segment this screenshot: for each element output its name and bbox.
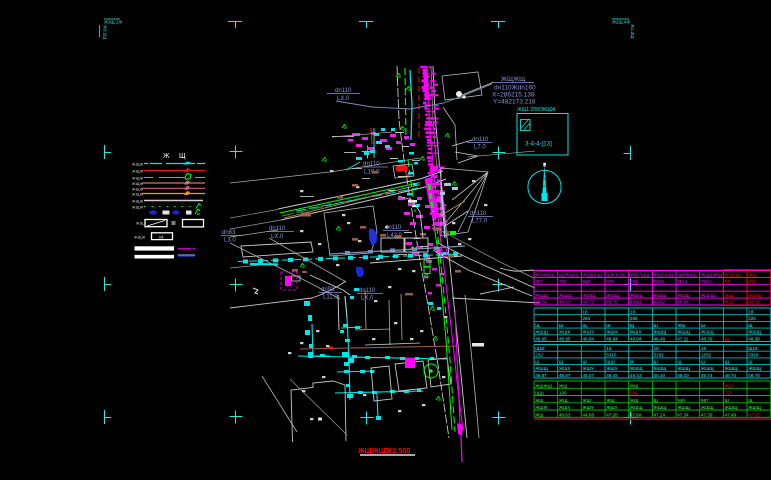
svg-text:ЖШЩ: ЖШЩ (677, 405, 690, 410)
svg-text:232: 232 (535, 353, 543, 358)
svg-text:ЖЩ: ЖЩ (136, 221, 144, 226)
svg-text:ЖЩ: ЖЩ (748, 272, 757, 277)
svg-text:ЖШЩ: ЖШЩ (630, 366, 643, 371)
svg-text:ЖШX: ЖШX (606, 366, 618, 371)
svg-text:ЖШ.Щ: ЖШ.Щ (701, 293, 716, 298)
svg-text:A4: A4 (159, 235, 165, 240)
svg-text:940: 940 (677, 398, 685, 403)
svg-text:ЖШЩ: ЖШЩ (748, 405, 761, 410)
svg-text:LX.0: LX.0 (337, 96, 350, 102)
svg-text:dn93: dn93 (321, 287, 335, 293)
svg-text:ЖШX: ЖШX (559, 366, 571, 371)
svg-text:ЖШЖШ: ЖШЖШ (535, 384, 552, 389)
svg-text:48.48: 48.48 (654, 336, 666, 341)
svg-text:ЖЩЖЩ: ЖЩЖЩ (501, 76, 525, 83)
svg-text:Щ: Щ (583, 323, 588, 328)
svg-text:48.39: 48.39 (748, 336, 760, 341)
svg-text:Щ: Щ (179, 153, 186, 160)
svg-text:47.28: 47.28 (606, 412, 618, 417)
svg-text:ЖШX: ЖШX (630, 330, 642, 335)
svg-text:48.76: 48.76 (606, 300, 618, 305)
svg-text:ЖЩ: ЖЩ (606, 398, 615, 403)
svg-text:ЖШЩ: ЖШЩ (725, 366, 738, 371)
svg-text:48.94: 48.94 (630, 336, 642, 341)
svg-text:48.74: 48.74 (725, 373, 737, 378)
svg-text:ЖШЩ: ЖШЩ (677, 330, 690, 335)
svg-text:48.43: 48.43 (630, 373, 642, 378)
svg-text:dn110: dn110 (472, 137, 489, 143)
svg-text:48.79: 48.79 (701, 336, 713, 341)
svg-text:48.95: 48.95 (535, 336, 547, 341)
svg-text:48.95: 48.95 (559, 336, 571, 341)
svg-text:705: 705 (559, 279, 567, 284)
svg-text:ЖШЩ: ЖШЩ (606, 293, 619, 298)
svg-text:ЖЩ: ЖЩ (559, 398, 568, 403)
svg-text:Щ: Щ (630, 323, 635, 328)
svg-text:44.68: 44.68 (583, 412, 595, 417)
svg-text:LX.0: LX.0 (271, 234, 284, 240)
svg-text:ЖШ: ЖШ (630, 384, 638, 389)
svg-text:dn110: dn110 (359, 288, 376, 294)
svg-text:dn110: dn110 (335, 88, 352, 94)
svg-text:ЖШX: ЖШX (559, 405, 571, 410)
svg-text:ЖШЩ: ЖШЩ (630, 293, 643, 298)
svg-text:Y=482173.218: Y=482173.218 (493, 99, 536, 106)
svg-text:dn110: dn110 (385, 225, 402, 231)
svg-text:682: 682 (583, 279, 591, 284)
svg-text:ЩШ: ЩШ (535, 391, 544, 396)
svg-text:48.82: 48.82 (748, 300, 760, 305)
svg-text:64: 64 (725, 279, 731, 284)
svg-text:ЖЩЖ: ЖЩЖ (132, 199, 143, 204)
svg-text:Ш: Ш (701, 359, 705, 364)
svg-text:ЖШ: ЖШ (725, 384, 733, 389)
svg-text:ЖШЩ: ЖШЩ (701, 405, 714, 410)
svg-text:18: 18 (583, 310, 589, 315)
svg-text:ЖШ: ЖШ (630, 398, 638, 403)
svg-text:721: 721 (725, 391, 733, 396)
svg-text:211: 211 (748, 279, 756, 284)
svg-text:48.84: 48.84 (583, 336, 595, 341)
svg-text:18: 18 (630, 310, 636, 315)
svg-text:X=286215.138: X=286215.138 (492, 92, 535, 99)
svg-text:Щ2ЖШЩ: Щ2ЖШЩ (559, 272, 579, 277)
svg-text:691: 691 (630, 279, 638, 284)
svg-text:ЖШЩ: ЖШЩ (654, 293, 667, 298)
svg-text:ЖЩШЖЩ: ЖЩШЖЩ (701, 272, 723, 277)
svg-text:dn110: dn110 (363, 161, 380, 168)
svg-text:ЖШЩ: ЖШЩ (748, 293, 761, 298)
svg-text:5310: 5310 (606, 353, 617, 358)
svg-text:ЖШЩ: ЖШЩ (535, 366, 548, 371)
svg-text:ЖШЩ: ЖШЩ (630, 405, 643, 410)
svg-text:ЖШY: ЖШY (583, 330, 595, 335)
svg-text:7812: 7812 (677, 279, 688, 284)
svg-text:Щ: Щ (748, 323, 753, 328)
svg-text:Щ: Щ (677, 359, 682, 364)
svg-text:ЖЩ: ЖЩ (725, 293, 734, 298)
svg-text:Ж3.2Щ: Ж3.2Щ (103, 25, 108, 39)
svg-text:ЖШЩ: ЖШЩ (677, 293, 690, 298)
svg-text:ЖШЩ: ЖШЩ (583, 293, 596, 298)
svg-text:48.43: 48.43 (559, 300, 571, 305)
svg-text:47.34: 47.34 (677, 412, 689, 417)
svg-text:47.69: 47.69 (630, 412, 642, 417)
svg-text:Ш: Ш (606, 323, 610, 328)
svg-text:3318: 3318 (748, 353, 759, 358)
svg-text:dn110: dn110 (470, 211, 487, 217)
svg-text:ЖЩЖ: ЖЩЖ (132, 162, 143, 167)
svg-text:ЩЖ3ШЩ: ЩЖ3ШЩ (606, 272, 626, 277)
svg-text:ЖШY: ЖШY (583, 405, 595, 410)
svg-text:ЩЖ8ШЩ: ЩЖ8ШЩ (677, 272, 697, 277)
svg-text:47.11: 47.11 (677, 336, 689, 341)
svg-text:ЖЩЖ: ЖЩЖ (132, 192, 143, 197)
svg-text:Щ: Щ (725, 359, 730, 364)
svg-text:48.87: 48.87 (535, 373, 547, 378)
svg-text:ЖШЩ: ЖШЩ (748, 330, 761, 335)
svg-text:ЖЩ3ШЩ: ЖЩ3ШЩ (654, 272, 674, 277)
svg-text:Щ: Щ (535, 323, 540, 328)
svg-text:LX.0: LX.0 (361, 296, 374, 302)
svg-text:48.74: 48.74 (701, 373, 713, 378)
svg-text:ЖШ: ЖШ (535, 412, 543, 417)
svg-text:48.82: 48.82 (654, 300, 666, 305)
svg-text:ЖШЩ: ЖШЩ (535, 293, 548, 298)
svg-text:Ж2Щ.4Ж: Ж2Щ.4Ж (612, 20, 630, 25)
svg-text:47.63: 47.63 (748, 412, 760, 417)
svg-text:48.43: 48.43 (606, 373, 618, 378)
svg-text:48.63: 48.63 (559, 412, 571, 417)
svg-text:ЖЩЖ: ЖЩЖ (132, 169, 143, 174)
svg-text:Ш: Ш (725, 336, 729, 341)
svg-text:L3.0: L3.0 (224, 238, 236, 244)
svg-text:18: 18 (701, 346, 707, 351)
svg-text:707: 707 (535, 279, 543, 284)
svg-text:Ж3Щ.1Ж: Ж3Щ.1Ж (104, 20, 122, 25)
svg-text:Щ18: Щ18 (535, 346, 545, 351)
svg-text:ЖШ: ЖШ (677, 323, 685, 328)
svg-text:502: 502 (630, 391, 638, 396)
svg-text:ЖШЖ: ЖШЖ (535, 405, 548, 410)
svg-text:47.49: 47.49 (725, 412, 737, 417)
svg-text:18: 18 (654, 346, 660, 351)
svg-text:48.74: 48.74 (535, 300, 547, 305)
svg-text:ЖШЩ: ЖШЩ (559, 293, 572, 298)
svg-text:ЖЩЖ: ЖЩЖ (134, 235, 145, 240)
svg-text:ЖЩ7ШЩ: ЖЩ7ШЩ (630, 272, 650, 277)
svg-text:ЖШЩ: ЖШЩ (654, 405, 667, 410)
svg-text:ЖШ: ЖШ (535, 398, 543, 403)
svg-text:ЖШЩ: ЖШЩ (748, 366, 761, 371)
svg-text:Ш: Ш (583, 359, 587, 364)
svg-text:226: 226 (748, 316, 756, 321)
svg-text:ЖШ: ЖШ (725, 300, 733, 305)
svg-text:ЖШЩ: ЖШЩ (725, 405, 738, 410)
svg-text:48.87: 48.87 (559, 373, 571, 378)
svg-text:ЖШX: ЖШX (606, 330, 618, 335)
svg-text:ЖЩЖ: ЖЩЖ (132, 176, 143, 181)
svg-text:ЖШЩШ: ЖШЩШ (725, 272, 742, 277)
svg-text:ЖЩЖ: ЖЩЖ (132, 205, 143, 210)
svg-text:48.84: 48.84 (677, 300, 689, 305)
svg-text:3-4-4-[13]: 3-4-4-[13] (525, 141, 552, 148)
svg-text:18: 18 (748, 310, 754, 315)
svg-text:ЖЩЖШЖ1:500: ЖЩЖШЖ1:500 (357, 446, 410, 455)
svg-text:dn63: dn63 (222, 230, 236, 236)
svg-text:1832: 1832 (701, 353, 712, 358)
svg-text:Ж3ЖШЩ: Ж3ЖШЩ (535, 272, 555, 277)
svg-text:ЖШY: ЖШY (583, 366, 595, 371)
svg-text:ЖШЩ: ЖШЩ (535, 330, 548, 335)
svg-text:48.07: 48.07 (583, 373, 595, 378)
svg-text:Щ: Щ (559, 359, 564, 364)
svg-text:7813: 7813 (654, 279, 665, 284)
svg-text:47.39: 47.39 (701, 412, 713, 417)
svg-text:48.94: 48.94 (606, 336, 618, 341)
svg-text:ЩШ: ЩШ (606, 359, 615, 364)
svg-text:18: 18 (606, 346, 612, 351)
svg-text:Ж1.3Щ: Ж1.3Щ (630, 24, 635, 38)
svg-text:3331: 3331 (654, 353, 665, 358)
svg-text:ЖШX: ЖШX (606, 405, 618, 410)
svg-text:ЖШЩ: ЖШЩ (654, 330, 667, 335)
svg-text:Ш: Ш (559, 323, 563, 328)
svg-text:ЖШ: ЖШ (583, 398, 591, 403)
svg-text:Щ18: Щ18 (748, 346, 758, 351)
svg-text:284: 284 (583, 316, 591, 321)
svg-text:ЖЩЖ: ЖЩЖ (132, 181, 143, 186)
svg-text:ЖЩ1:2000ЖЩЖ: ЖЩ1:2000ЖЩЖ (517, 107, 556, 113)
svg-text:47.24: 47.24 (654, 412, 666, 417)
svg-text:L7.0: L7.0 (474, 145, 486, 151)
svg-text:100: 100 (559, 391, 567, 396)
svg-text:ЖШЩ: ЖШЩ (677, 366, 690, 371)
svg-text:Ш: Ш (535, 359, 539, 364)
svg-text:ЖШЩ: ЖШЩ (701, 330, 714, 335)
svg-text:Ж: Ж (630, 359, 635, 364)
svg-text:Ш: Ш (748, 359, 752, 364)
svg-text:dn110Жdn160: dn110Жdn160 (494, 85, 536, 92)
svg-text:Ш: Ш (701, 323, 705, 328)
svg-text:7824: 7824 (701, 279, 712, 284)
svg-text:Ж: Ж (163, 153, 170, 160)
svg-text:48.10: 48.10 (677, 373, 689, 378)
svg-text:ЖШX: ЖШX (559, 330, 571, 335)
svg-text:48.78: 48.78 (748, 373, 760, 378)
svg-text:Щ: Щ (748, 398, 753, 403)
svg-text:Ш: Ш (654, 323, 658, 328)
svg-text:Щ: Щ (654, 398, 659, 403)
svg-text:ЖШ: ЖШ (559, 384, 567, 389)
svg-text:Ш: Ш (725, 398, 729, 403)
svg-text:288: 288 (630, 316, 638, 321)
svg-text:Ш: Ш (654, 359, 658, 364)
svg-text:ЖЩ5ШЩ: ЖЩ5ШЩ (583, 272, 603, 277)
svg-text:48.73: 48.73 (583, 300, 595, 305)
svg-text:L77.0: L77.0 (472, 219, 488, 225)
svg-text:987: 987 (701, 398, 709, 403)
svg-text:ЖШЩ: ЖШЩ (654, 366, 667, 371)
svg-text:ЖШЩ: ЖШЩ (701, 366, 714, 371)
svg-text:48.10: 48.10 (654, 373, 666, 378)
svg-text:L11.0: L11.0 (323, 295, 338, 301)
svg-text:679: 679 (606, 279, 614, 284)
svg-text:48.81: 48.81 (630, 300, 642, 305)
